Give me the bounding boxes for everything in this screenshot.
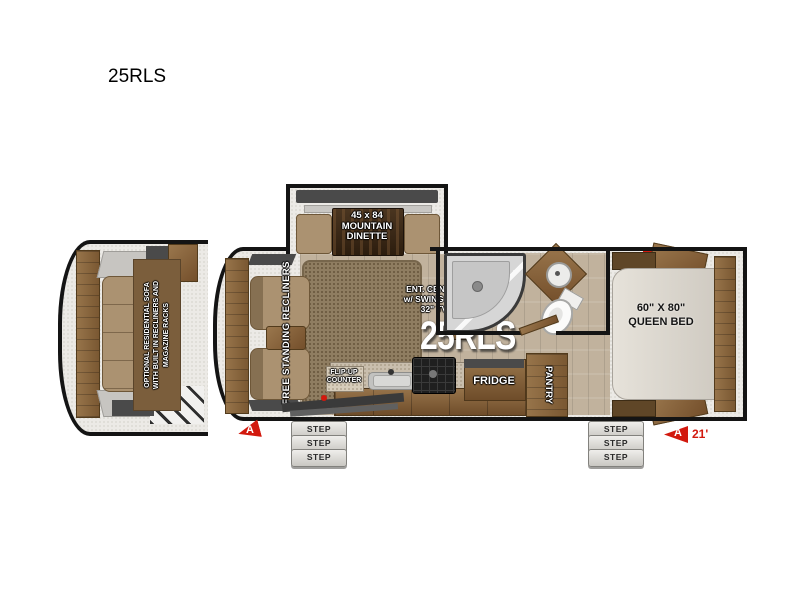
recliners-label: FREE STANDING RECLINERS: [281, 253, 295, 413]
fridge-label: FRIDGE: [464, 375, 524, 387]
step: STEP: [588, 449, 644, 467]
kitchen-sink-basin: [373, 375, 411, 387]
recliner-top: [250, 276, 310, 330]
door-a-letter: A: [246, 424, 254, 436]
bathroom-wall-bottom-left: [436, 331, 522, 335]
top-wall: [430, 247, 747, 251]
bedroom-dresser: [714, 256, 736, 412]
door-a-marker: A: [238, 421, 264, 441]
page-title: 25RLS: [108, 66, 166, 88]
queen-bed-label: 60" X 80" QUEEN BED: [606, 302, 716, 330]
step: STEP: [291, 449, 347, 467]
rear-length-marker: A 21': [664, 425, 720, 445]
recliner-bottom: [250, 348, 310, 400]
bed-rail-bottom: [612, 400, 656, 417]
fire-extinguisher-dot: [321, 395, 327, 401]
length-label: 21': [692, 427, 708, 441]
sink-faucet: [388, 369, 394, 375]
front-tv-cabinet: [225, 258, 249, 414]
queen-bed: [612, 268, 720, 400]
pantry-label: PANTRY: [538, 345, 554, 425]
bathroom-wall-left: [436, 251, 440, 335]
optional-sofa-label: OPTIONAL RESIDENTIAL SOFA WITH BUILT IN …: [133, 259, 181, 411]
bathroom-wall-bottom-right: [556, 331, 610, 335]
vanity-faucet: [555, 271, 560, 276]
fridge-top: [464, 359, 524, 368]
dinette-label: 45 x 84 MOUNTAIN DINETTE: [286, 211, 448, 243]
stove-center: [429, 370, 437, 378]
floorplan-image: 25RLS OPTIONAL RESIDENTIAL SOFA WITH BUI…: [0, 0, 800, 600]
shower-drain: [472, 281, 483, 292]
dinette-back-cushion: [296, 190, 438, 203]
rear-a-letter: A: [674, 427, 682, 439]
flip-up-counter-label: FLIP-UP COUNTER: [326, 369, 362, 386]
